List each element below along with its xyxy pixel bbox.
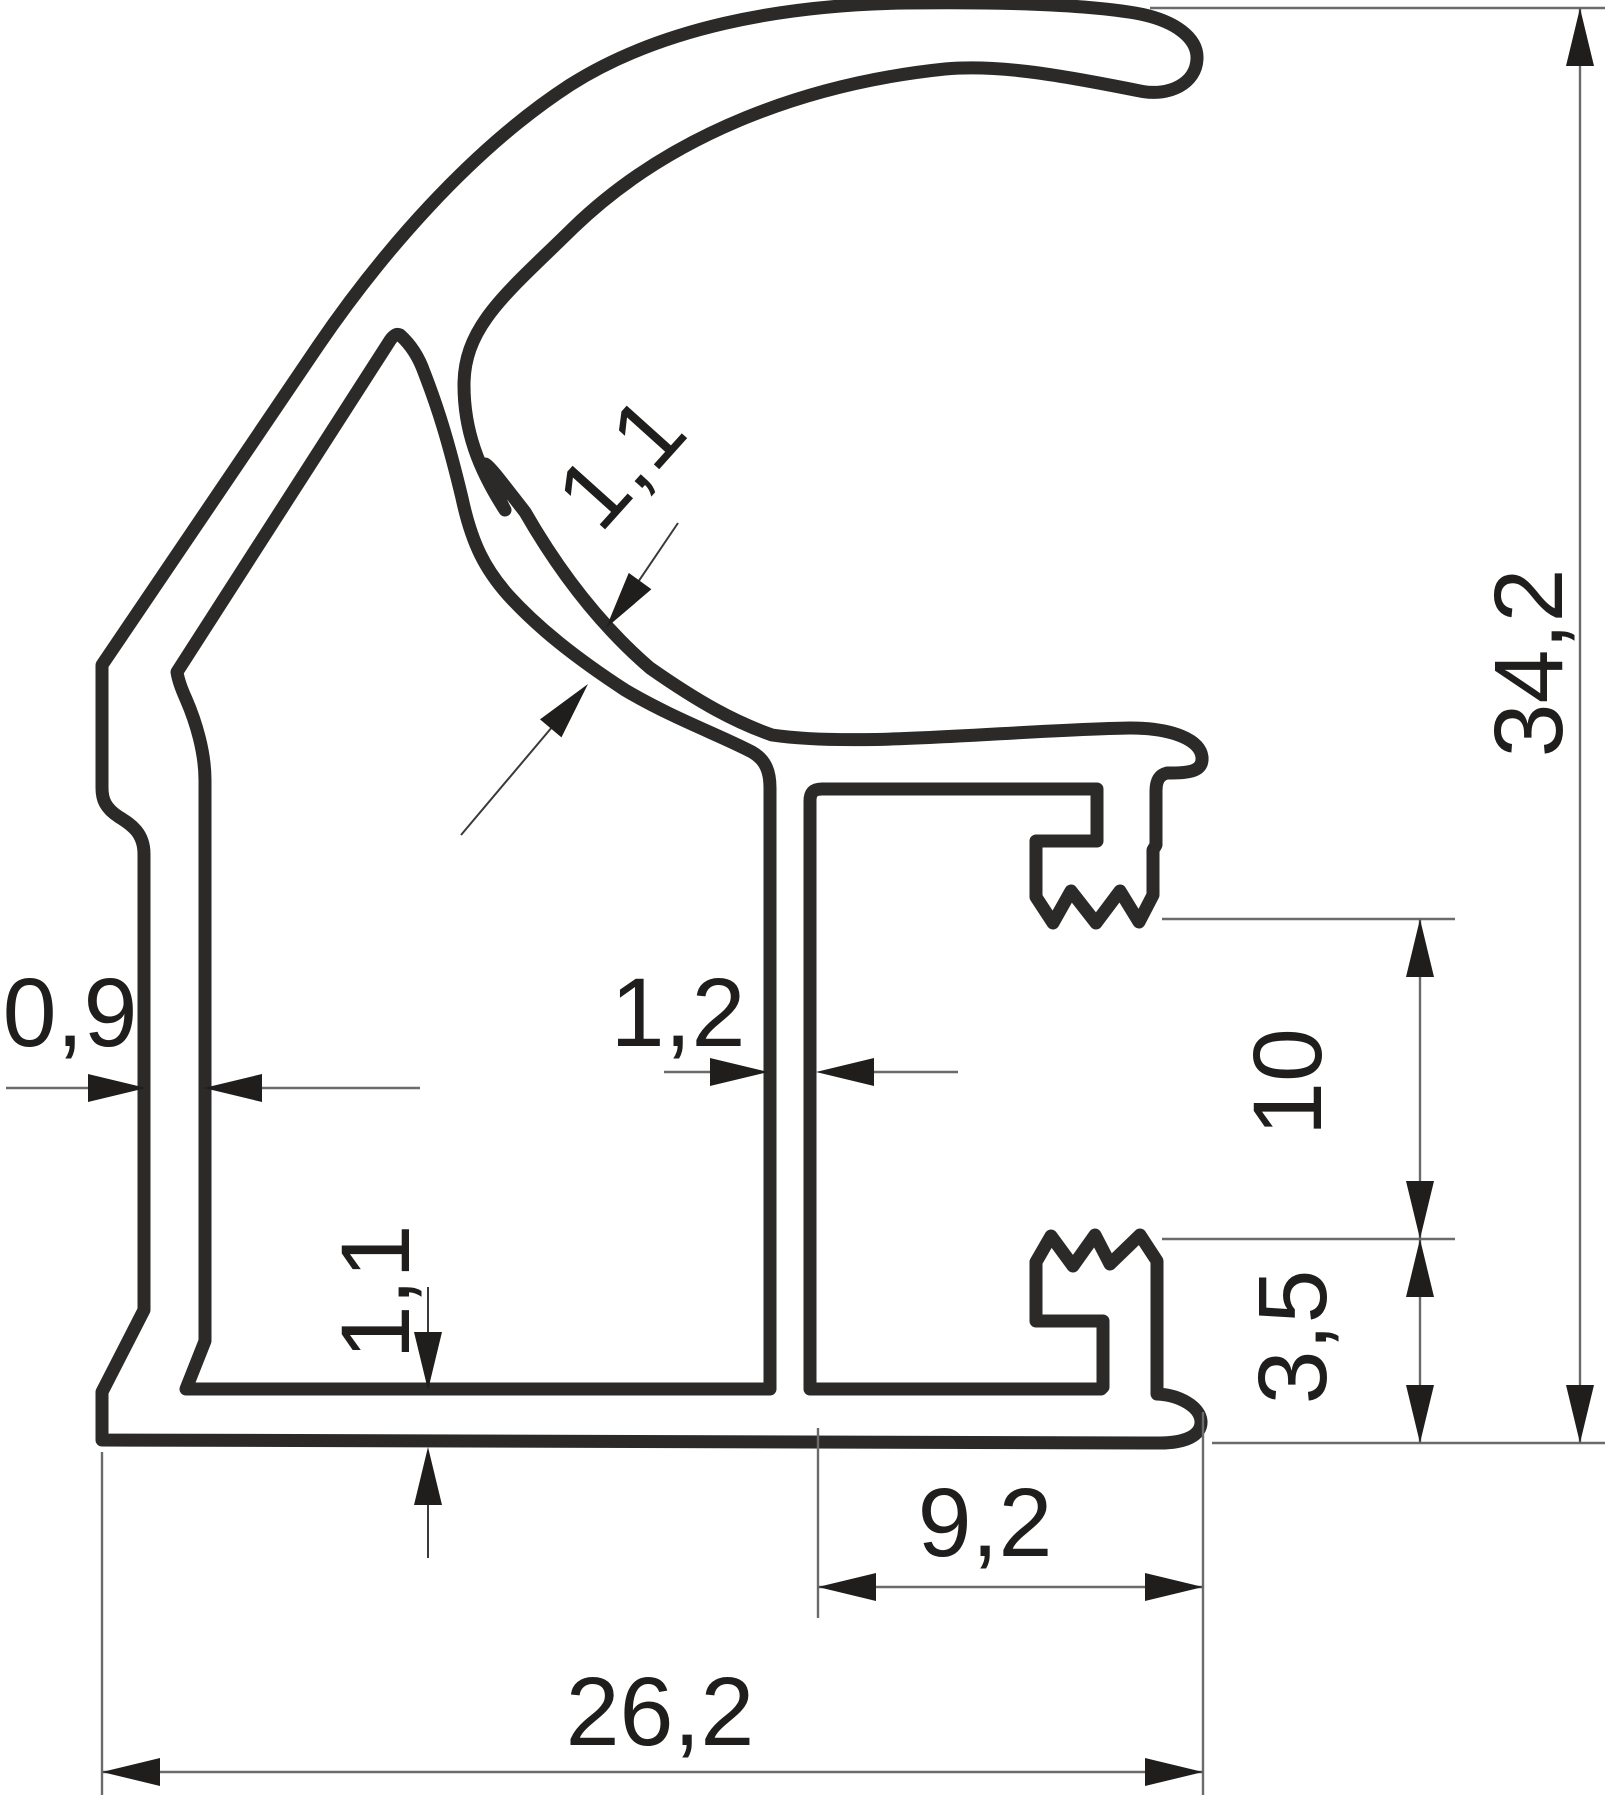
dim-left-wall-label: 0,9 [3, 958, 138, 1067]
dim-center-rib-label: 1,2 [611, 958, 746, 1067]
dim-center-rib: 1,2 [611, 958, 958, 1086]
arrow-up-icon [1406, 1239, 1434, 1297]
arrow-up-icon [414, 1447, 442, 1505]
dim-groove-width-label: 9,2 [918, 1468, 1053, 1577]
dim-overall-height-label: 34,2 [1474, 569, 1583, 758]
arrow-right-icon [1145, 1573, 1203, 1601]
arrow-up-icon [1566, 8, 1594, 66]
arrow-right-icon [88, 1074, 146, 1102]
dim-groove-width: 9,2 [818, 1412, 1203, 1795]
arrow-down-icon [1406, 1385, 1434, 1443]
dim-hook-opening-label: 10 [1233, 1028, 1342, 1136]
dim-lower-hook-offset-label: 3,5 [1238, 1270, 1347, 1405]
dim-overall-width-label: 26,2 [566, 1657, 755, 1766]
dim-bottom-wall-label: 1,1 [321, 1225, 430, 1360]
arrow-left-icon [818, 1573, 876, 1601]
dim-c-wall-label: 1,1 [535, 376, 706, 549]
arrow-right-icon [1145, 1758, 1203, 1786]
dim-overall-height: 34,2 [1150, 8, 1605, 1443]
dim-hook-opening: 10 3,5 [1162, 919, 1455, 1443]
arrow-up-icon [1406, 919, 1434, 977]
arrow-up-right-icon [540, 675, 599, 737]
arrow-left-icon [816, 1058, 874, 1086]
technical-drawing: 34,2 10 3,5 0,9 1,2 1,1 [0, 0, 1605, 1801]
arrow-left-icon [204, 1074, 262, 1102]
profile-outer-contour [102, 3, 1202, 1443]
arrow-down-icon [1406, 1181, 1434, 1239]
arrow-down-icon [1566, 1385, 1594, 1443]
drawing-canvas: 34,2 10 3,5 0,9 1,2 1,1 [0, 0, 1605, 1801]
profile-outline-group [102, 3, 1202, 1443]
arrow-left-icon [102, 1758, 160, 1786]
profile-chamber-hole [177, 334, 770, 1389]
